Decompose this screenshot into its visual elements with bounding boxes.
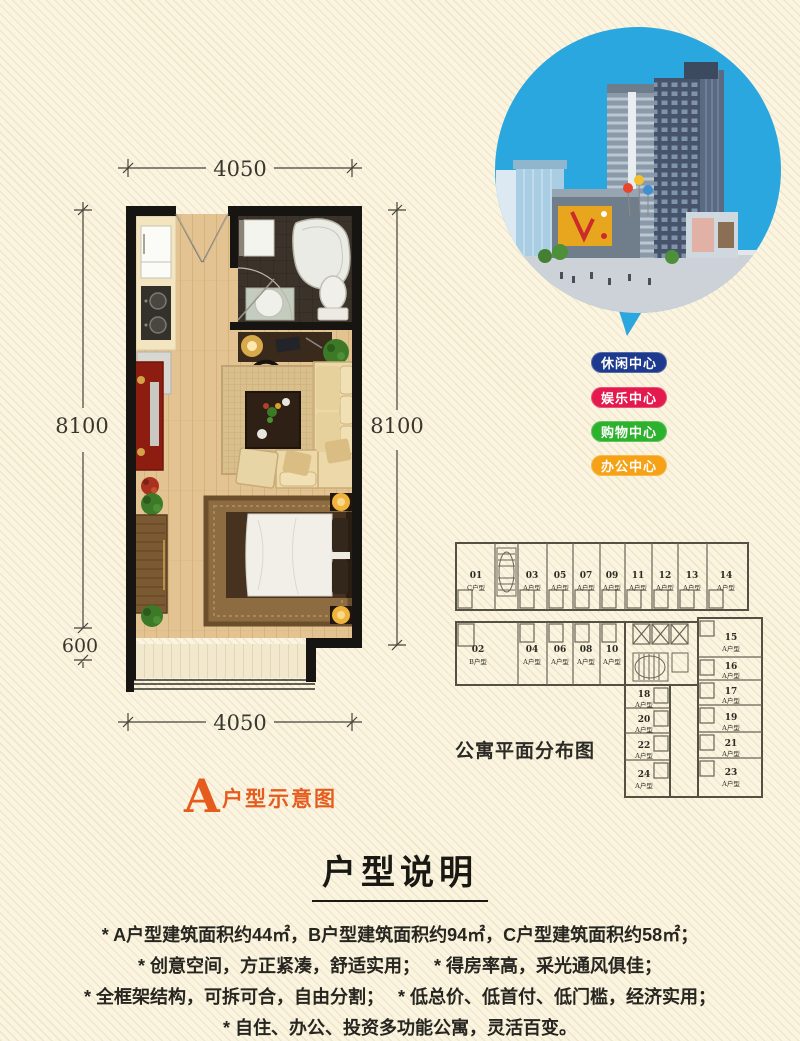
svg-text:09: 09	[606, 571, 619, 581]
svg-text:A户型: A户型	[721, 723, 740, 732]
svg-text:21: 21	[725, 739, 738, 749]
plant	[141, 605, 163, 627]
svg-text:01: 01	[470, 571, 483, 581]
svg-text:A户型: A户型	[634, 725, 653, 734]
apartment-distribution-plan: 01C户型 03A户型 05A户型 07A户型 09A户型 11A户型 12A户…	[445, 528, 780, 813]
svg-text:07: 07	[580, 571, 593, 581]
svg-text:19: 19	[725, 713, 738, 723]
toilet	[320, 276, 346, 310]
balcony-deck	[134, 644, 308, 678]
svg-text:A户型: A户型	[634, 751, 653, 760]
svg-text:15: 15	[725, 633, 738, 643]
svg-text:A户型: A户型	[721, 671, 740, 680]
badge-leisure-center: 休闲中心	[591, 352, 667, 373]
double-bed	[226, 512, 352, 598]
svg-text:A户型: A户型	[634, 781, 653, 790]
svg-text:10: 10	[606, 645, 619, 655]
brochure-page: 4050 4050 8100 600 8100	[0, 0, 800, 1041]
flower-plant	[141, 477, 159, 495]
svg-text:A户型: A户型	[576, 657, 595, 666]
title-underline	[312, 900, 488, 902]
plan-label-letter: A	[183, 769, 221, 823]
description-line: * 自住、办公、投资多功能公寓，灵活百变。	[0, 1013, 800, 1041]
svg-text:24: 24	[638, 770, 651, 780]
bedside-lamp	[330, 493, 352, 511]
distribution-title: 公寓平面分布图	[455, 739, 595, 762]
svg-text:20: 20	[638, 715, 651, 725]
plant	[141, 493, 163, 515]
svg-text:05: 05	[554, 571, 567, 581]
svg-text:A户型: A户型	[602, 657, 621, 666]
svg-text:A户型: A户型	[550, 657, 569, 666]
refrigerator	[141, 226, 171, 278]
balcony-railing	[127, 680, 315, 689]
description-line: * 创意空间，方正紧凑，舒适实用； * 得房率高，采光通风俱佳；	[0, 951, 800, 982]
stairwell	[497, 548, 516, 596]
svg-text:A户型: A户型	[550, 583, 569, 592]
dimension-label-bottom: 4050	[213, 711, 266, 735]
description-section: 户型说明 * A户型建筑面积约44㎡，B户型建筑面积约94㎡，C户型建筑面积约5…	[0, 845, 800, 1041]
svg-text:A户型: A户型	[721, 696, 740, 705]
svg-text:08: 08	[580, 645, 593, 655]
ottoman	[236, 448, 279, 489]
svg-text:A户型: A户型	[522, 583, 541, 592]
svg-text:A户型: A户型	[576, 583, 595, 592]
svg-text:11: 11	[632, 571, 645, 581]
elevator-bank	[633, 624, 688, 644]
svg-text:06: 06	[554, 645, 567, 655]
bathtub	[293, 219, 350, 289]
svg-text:A户型: A户型	[628, 583, 647, 592]
description-title: 户型说明	[0, 845, 800, 894]
core-stairs	[633, 653, 688, 681]
svg-text:17: 17	[725, 687, 738, 697]
dimension-label-left: 8100	[55, 414, 108, 438]
svg-text:A户型: A户型	[721, 644, 740, 653]
svg-text:A户型: A户型	[602, 583, 621, 592]
svg-text:C户型: C户型	[467, 583, 485, 592]
svg-text:13: 13	[686, 571, 699, 581]
svg-text:A户型: A户型	[716, 583, 735, 592]
svg-text:A户型: A户型	[522, 657, 541, 666]
badge-entertainment-center: 娱乐中心	[591, 387, 667, 408]
bathroom	[238, 216, 352, 322]
svg-text:02: 02	[472, 645, 485, 655]
bedside-lamp	[330, 606, 352, 624]
plan-label-text: 户型示意图	[222, 786, 337, 811]
svg-text:22: 22	[638, 741, 651, 751]
dimension-label-top: 4050	[213, 157, 266, 181]
bathroom-sink	[255, 289, 283, 317]
potted-plant	[323, 339, 349, 365]
floor-plan-a: 4050 4050 8100 600 8100	[0, 0, 460, 840]
tv	[150, 382, 159, 446]
badge-shopping-center: 购物中心	[591, 421, 667, 442]
dimension-label-right: 8100	[370, 414, 423, 438]
dimension-label-left-lower: 600	[62, 635, 98, 657]
svg-text:12: 12	[659, 571, 672, 581]
badge-office-center: 办公中心	[591, 455, 667, 476]
svg-text:18: 18	[638, 690, 651, 700]
project-rendering-balloon	[470, 10, 800, 350]
bath-shelf	[244, 220, 274, 256]
svg-text:A户型: A户型	[634, 700, 653, 709]
svg-text:04: 04	[526, 645, 539, 655]
description-line: * 全框架结构，可拆可合，自由分割； * 低总价、低首付、低门槛，经济实用；	[0, 982, 800, 1013]
svg-text:03: 03	[526, 571, 539, 581]
description-line: * A户型建筑面积约44㎡，B户型建筑面积约94㎡，C户型建筑面积约58㎡；	[0, 920, 800, 951]
wardrobe	[133, 515, 167, 613]
svg-text:16: 16	[725, 662, 738, 672]
svg-text:A户型: A户型	[655, 583, 674, 592]
svg-text:A户型: A户型	[721, 779, 740, 788]
svg-text:23: 23	[725, 768, 738, 778]
svg-text:14: 14	[720, 571, 733, 581]
svg-text:B户型: B户型	[469, 657, 487, 666]
svg-text:A户型: A户型	[721, 749, 740, 758]
svg-text:A户型: A户型	[682, 583, 701, 592]
